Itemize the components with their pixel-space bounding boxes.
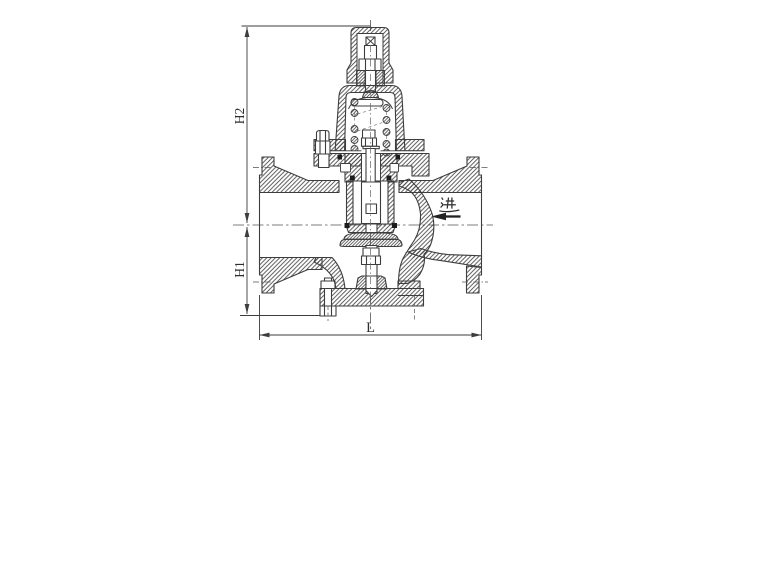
svg-text:H1: H1	[232, 261, 247, 278]
svg-text:H2: H2	[232, 108, 247, 125]
